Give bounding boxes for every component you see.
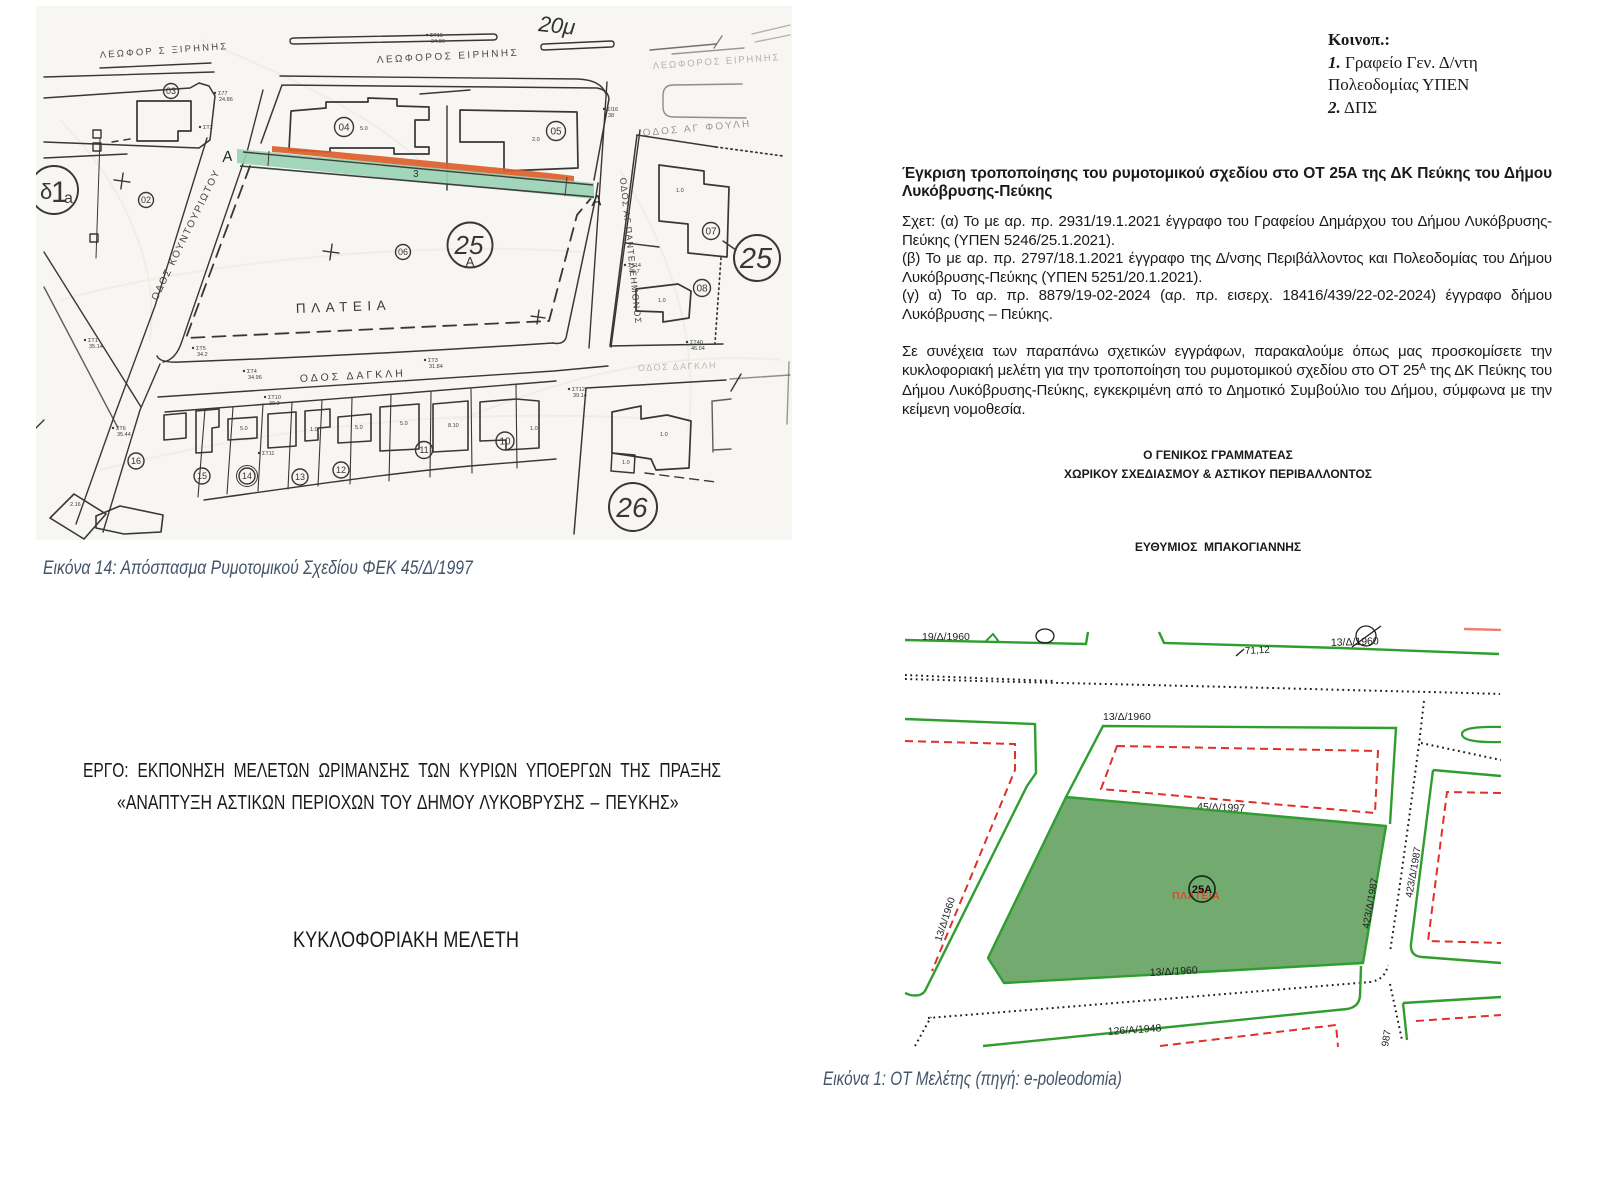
svg-text:34.96: 34.96 <box>248 375 262 381</box>
svg-text:2.0: 2.0 <box>532 137 540 143</box>
svg-text:ΣΤ11: ΣΤ11 <box>262 451 274 457</box>
svg-text:1.0: 1.0 <box>310 427 318 433</box>
svg-text:A: A <box>466 254 475 269</box>
svg-text:10: 10 <box>499 437 511 448</box>
svg-text:07: 07 <box>705 227 717 238</box>
svg-text:13/Δ/1960: 13/Δ/1960 <box>1331 635 1379 649</box>
svg-text:31.84: 31.84 <box>429 364 443 370</box>
svg-text:71,12: 71,12 <box>1245 645 1271 657</box>
svg-text:15: 15 <box>197 471 207 481</box>
svg-text:ΣΤ2: ΣΤ2 <box>203 125 213 131</box>
svg-text:34.96: 34.96 <box>431 39 445 45</box>
svg-text:13: 13 <box>295 472 305 482</box>
svg-text:16: 16 <box>131 456 141 466</box>
svg-text:5.0: 5.0 <box>360 126 368 132</box>
svg-text:5.0: 5.0 <box>355 425 363 431</box>
svg-text:3: 3 <box>413 169 419 180</box>
svg-text:19/Δ/1960: 19/Δ/1960 <box>922 631 970 643</box>
svg-text:1.0: 1.0 <box>676 188 684 194</box>
svg-text:34.2: 34.2 <box>197 352 208 358</box>
svg-text:04: 04 <box>338 123 350 134</box>
svg-text:1.0: 1.0 <box>660 432 668 438</box>
svg-text:24.86: 24.86 <box>219 97 233 103</box>
svg-text:2.16: 2.16 <box>70 502 81 508</box>
svg-text:8.10: 8.10 <box>448 423 459 429</box>
svg-text:39.14: 39.14 <box>573 393 587 399</box>
svg-text:35.44: 35.44 <box>117 432 131 438</box>
svg-text:20μ: 20μ <box>536 11 576 40</box>
svg-text:13/Δ/1960: 13/Δ/1960 <box>1150 964 1199 978</box>
svg-text:25Α: 25Α <box>1192 884 1212 896</box>
svg-text:05: 05 <box>550 127 562 138</box>
svg-text:35.14: 35.14 <box>89 344 103 350</box>
svg-text:26: 26 <box>615 492 648 523</box>
svg-text:06: 06 <box>398 247 408 257</box>
svg-text:25: 25 <box>739 243 773 275</box>
svg-text:1.0: 1.0 <box>530 426 538 432</box>
svg-text:13/Δ/1960: 13/Δ/1960 <box>933 896 958 943</box>
svg-text:5.0: 5.0 <box>240 426 248 432</box>
svg-text:03: 03 <box>166 86 176 96</box>
svg-text:45.7: 45.7 <box>629 269 640 275</box>
svg-text:14: 14 <box>242 471 252 481</box>
svg-text:08: 08 <box>696 284 708 295</box>
svg-text:1.0: 1.0 <box>622 460 630 466</box>
svg-text:39.3: 39.3 <box>269 401 280 407</box>
svg-text:46.04: 46.04 <box>691 346 705 352</box>
svg-text:38: 38 <box>608 113 614 119</box>
svg-text:5.0: 5.0 <box>400 421 408 427</box>
svg-text:02: 02 <box>141 195 151 205</box>
svg-text:11: 11 <box>419 445 428 455</box>
svg-text:13/Δ/1960: 13/Δ/1960 <box>1103 711 1151 723</box>
svg-text:A: A <box>590 192 602 210</box>
svg-text:12: 12 <box>336 465 346 475</box>
svg-text:126/Α/1948: 126/Α/1948 <box>1107 1022 1162 1038</box>
svg-text:a: a <box>64 190 73 207</box>
svg-text:1.0: 1.0 <box>658 298 666 304</box>
svg-text:987: 987 <box>1380 1029 1394 1048</box>
